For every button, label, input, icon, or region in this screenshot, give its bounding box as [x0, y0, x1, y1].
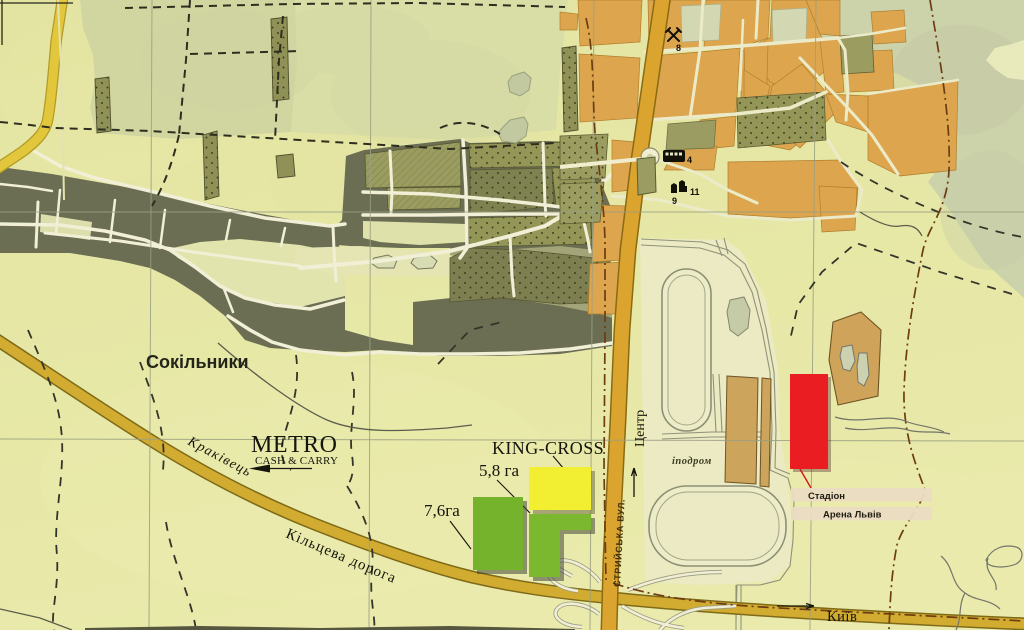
svg-text:8: 8 — [676, 43, 681, 53]
svg-text:Центр: Центр — [633, 410, 648, 447]
svg-text:Сокільники: Сокільники — [146, 352, 249, 372]
svg-text:Стадіон: Стадіон — [808, 491, 845, 502]
svg-text:5,8 га: 5,8 га — [479, 461, 519, 480]
svg-text:Арена Львів: Арена Львів — [823, 510, 882, 521]
svg-text:Київ: Київ — [827, 609, 857, 625]
svg-text:4: 4 — [687, 155, 692, 165]
svg-text:іподром: іподром — [672, 456, 712, 467]
svg-text:7,6га: 7,6га — [424, 501, 460, 520]
svg-text:9: 9 — [672, 196, 677, 206]
svg-text:11: 11 — [690, 187, 700, 197]
svg-text:KING-CROSS: KING-CROSS — [492, 438, 604, 458]
